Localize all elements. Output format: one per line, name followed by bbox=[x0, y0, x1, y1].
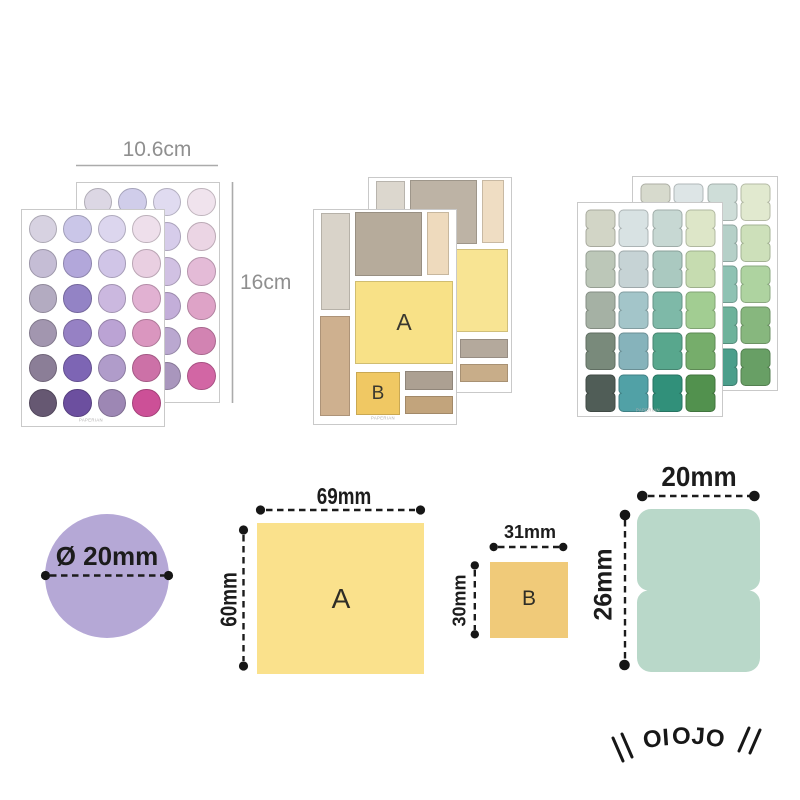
svg-text:J: J bbox=[691, 723, 706, 751]
svg-text:O: O bbox=[704, 724, 726, 753]
svg-text:O: O bbox=[672, 723, 691, 750]
svg-text:I: I bbox=[662, 724, 671, 751]
svg-text:O: O bbox=[641, 725, 663, 754]
